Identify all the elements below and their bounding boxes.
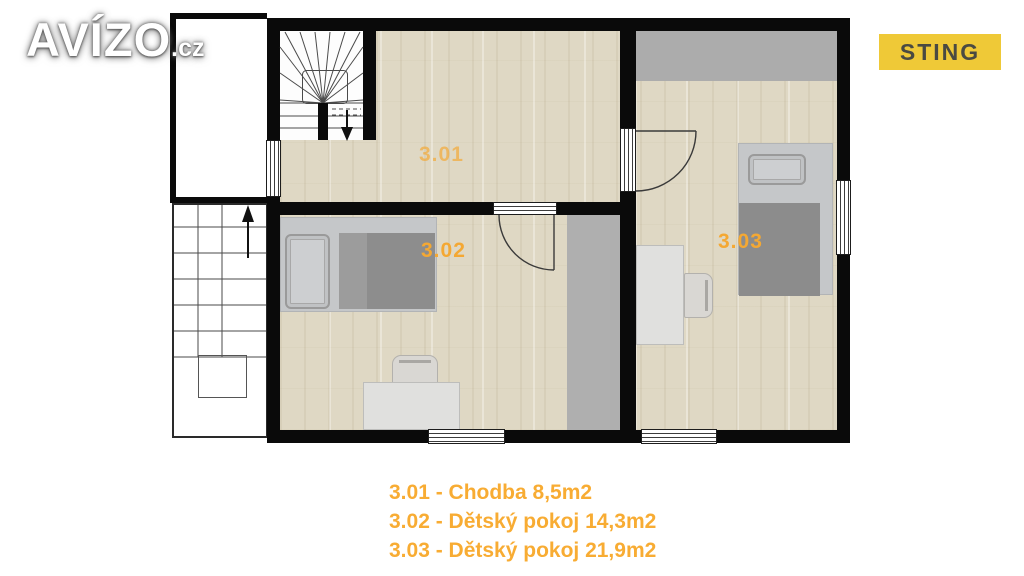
window-right-wall: [836, 180, 851, 255]
room-label-303: 3.03: [718, 230, 763, 254]
wall-right-segment: [837, 18, 850, 180]
wall-top: [267, 18, 850, 31]
room-legend: 3.01 - Chodba 8,5m2 3.02 - Dětský pokoj …: [389, 478, 656, 565]
bed-room303: [738, 143, 833, 295]
stairwell: [280, 31, 363, 140]
wall-bottom-segment: [505, 430, 641, 443]
low-headroom-area: [636, 31, 837, 81]
wall-hall-room303-segment: [620, 192, 636, 430]
avizo-logo-suffix: .cz: [171, 34, 204, 62]
wall-bottom-segment: [267, 430, 428, 443]
legend-line-302: 3.02 - Dětský pokoj 14,3m2: [389, 507, 656, 536]
window-left-wall: [266, 140, 281, 197]
avizo-logo-text: AVÍZO: [26, 13, 171, 66]
wall-hall-room302-segment: [280, 202, 493, 215]
door-frame-hall-room302: [493, 202, 557, 215]
legend-line-301: 3.01 - Chodba 8,5m2: [389, 478, 656, 507]
legend-line-303: 3.03 - Dětský pokoj 21,9m2: [389, 536, 656, 565]
wall-bottom-segment: [717, 430, 850, 443]
room-label-301: 3.01: [419, 143, 464, 167]
wall-hall-room302-segment: [557, 202, 620, 215]
sting-badge: STING: [879, 34, 1001, 70]
wall-left-segment: [267, 197, 280, 443]
window-room302-bottom: [428, 429, 505, 444]
wall-hall-room303-segment: [620, 31, 636, 128]
pillow-room303: [748, 154, 806, 185]
wall-left-segment: [267, 18, 280, 140]
floorplan-page: AVÍZO.cz STING: [0, 0, 1024, 576]
chair-room303: [684, 273, 713, 318]
stairwell-wall: [363, 31, 376, 140]
desk-room303: [636, 245, 684, 345]
desk-room302: [363, 382, 460, 430]
door-frame-hall-room303: [620, 128, 636, 192]
wall-right-segment: [837, 255, 850, 443]
chair-backrest: [705, 280, 708, 311]
wardrobe: [567, 215, 620, 430]
window-room303-bottom: [641, 429, 717, 444]
chair-room302: [392, 355, 438, 384]
pillow-room302: [285, 234, 330, 309]
exterior-staircase: [172, 203, 268, 438]
chair-backrest: [399, 360, 431, 363]
avizo-logo: AVÍZO.cz: [26, 12, 205, 67]
bed-room302: [280, 217, 437, 312]
room-label-302: 3.02: [421, 239, 466, 263]
